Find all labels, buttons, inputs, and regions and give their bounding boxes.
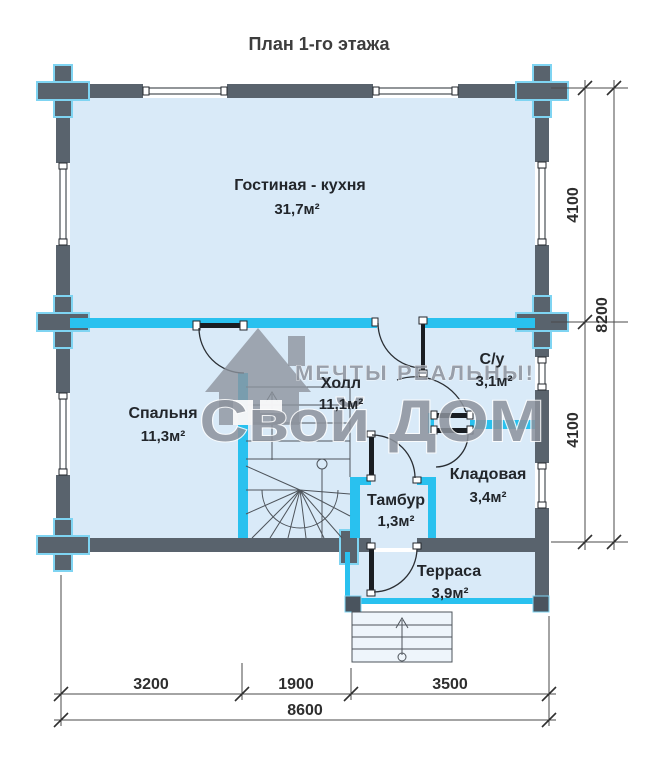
window-top-right <box>373 84 458 98</box>
label-living-name: Гостиная - кухня <box>234 177 366 194</box>
label-hall-name: Холл <box>321 375 361 392</box>
floor-plan-page: МЕЧТЫ РЕАЛЬНЫ! Свой ДОМ Гостиная - кухня… <box>0 0 656 768</box>
dim-right-total: 8200 <box>594 297 611 333</box>
floor-plan-svg: МЕЧТЫ РЕАЛЬНЫ! Свой ДОМ Гостиная - кухня… <box>0 0 656 768</box>
label-terrace-area: 3,9м² <box>432 585 469 602</box>
window-right-upper <box>535 162 549 245</box>
label-bathroom-name: С/у <box>480 351 505 368</box>
label-storage-area: 3,4м² <box>470 489 507 506</box>
dim-right-bottom: 4100 <box>565 412 582 448</box>
label-vestibule-name: Тамбур <box>367 492 425 509</box>
dim-bottom-middle: 1900 <box>278 676 314 693</box>
dim-bottom-total: 8600 <box>287 702 323 719</box>
window-left-upper <box>56 163 70 245</box>
window-top-left <box>143 84 227 98</box>
label-bathroom-area: 3,1м² <box>476 373 513 390</box>
dim-bottom-right: 3500 <box>432 676 468 693</box>
window-left-lower <box>56 393 70 475</box>
label-storage-name: Кладовая <box>450 466 527 483</box>
label-terrace-name: Терраса <box>417 563 481 580</box>
dim-right-top: 4100 <box>565 187 582 223</box>
label-bedroom-area: 11,3м² <box>141 428 185 445</box>
watermark-brand: Свой ДОМ <box>200 389 545 454</box>
label-bedroom-name: Спальня <box>128 405 197 422</box>
label-living-area: 31,7м² <box>274 201 319 218</box>
page-title: План 1-го этажа <box>248 34 390 54</box>
label-vestibule-area: 1,3м² <box>378 513 415 530</box>
window-right-storage <box>535 463 549 508</box>
label-hall-area: 11,1м² <box>319 396 363 413</box>
dim-bottom-left: 3200 <box>133 676 169 693</box>
window-right-bathroom <box>535 357 549 390</box>
